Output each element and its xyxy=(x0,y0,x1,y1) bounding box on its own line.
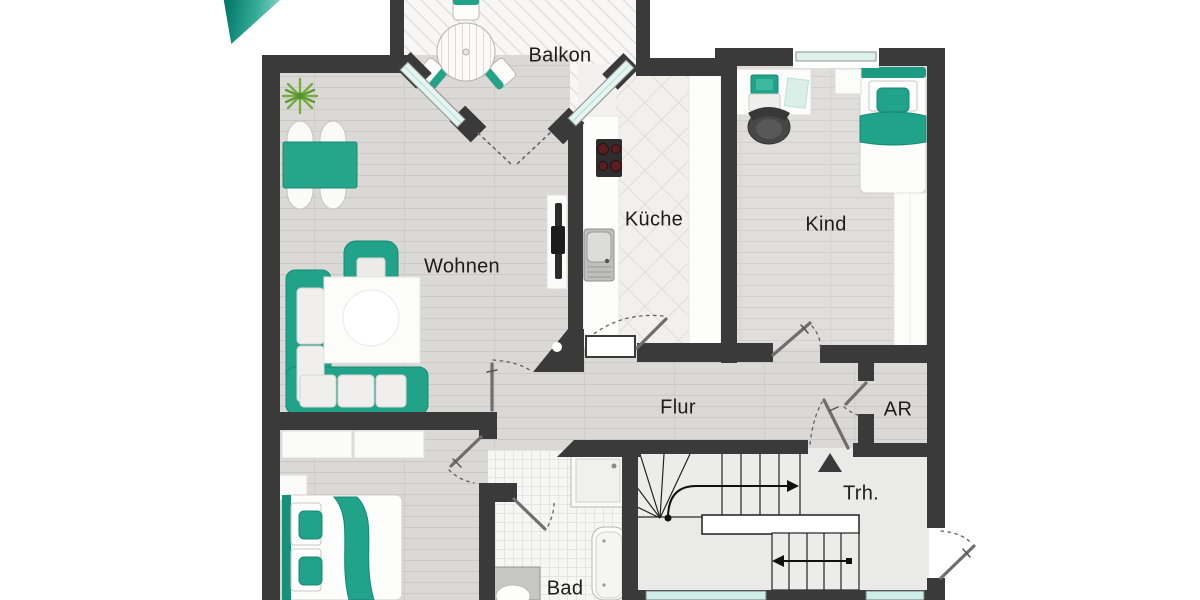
floorplan-drawing xyxy=(0,0,1200,600)
kids-wardrobe xyxy=(894,193,926,347)
room-label-wohnen: Wohnen xyxy=(424,256,500,279)
room-label-bad: Bad xyxy=(547,578,584,600)
kind-window xyxy=(793,46,879,68)
trh-exit-door xyxy=(941,531,974,578)
room-label-trh: Trh. xyxy=(843,483,879,506)
trh-window-left xyxy=(646,591,766,600)
washing-machine xyxy=(490,567,540,600)
stair-landing xyxy=(702,515,859,534)
dining-table xyxy=(283,142,357,188)
shower xyxy=(571,454,625,507)
kitchen-counter-right xyxy=(689,64,721,351)
kitchen-sink xyxy=(584,229,614,281)
stove xyxy=(596,139,622,177)
balcony-table xyxy=(437,23,495,81)
floorplan-page: Balkon Wohnen Küche Kind Flur AR Trh. Ba… xyxy=(0,0,1200,600)
room-label-kueche: Küche xyxy=(625,209,683,232)
plant xyxy=(283,79,317,113)
balcony-chair-top xyxy=(453,0,479,20)
tv-sideboard xyxy=(547,195,567,289)
kids-bed xyxy=(860,67,926,193)
desk-chair xyxy=(748,107,790,144)
kitchen-door-threshold xyxy=(586,336,635,357)
double-bed xyxy=(282,495,402,600)
kids-nightstand xyxy=(835,69,861,94)
trh-window-right xyxy=(866,591,924,600)
bathtub xyxy=(592,527,626,600)
room-label-flur: Flur xyxy=(660,397,696,420)
coffee-table xyxy=(324,277,420,363)
room-label-kind: Kind xyxy=(805,214,846,237)
room-label-balkon: Balkon xyxy=(529,45,592,68)
room-label-ar: AR xyxy=(884,399,912,422)
